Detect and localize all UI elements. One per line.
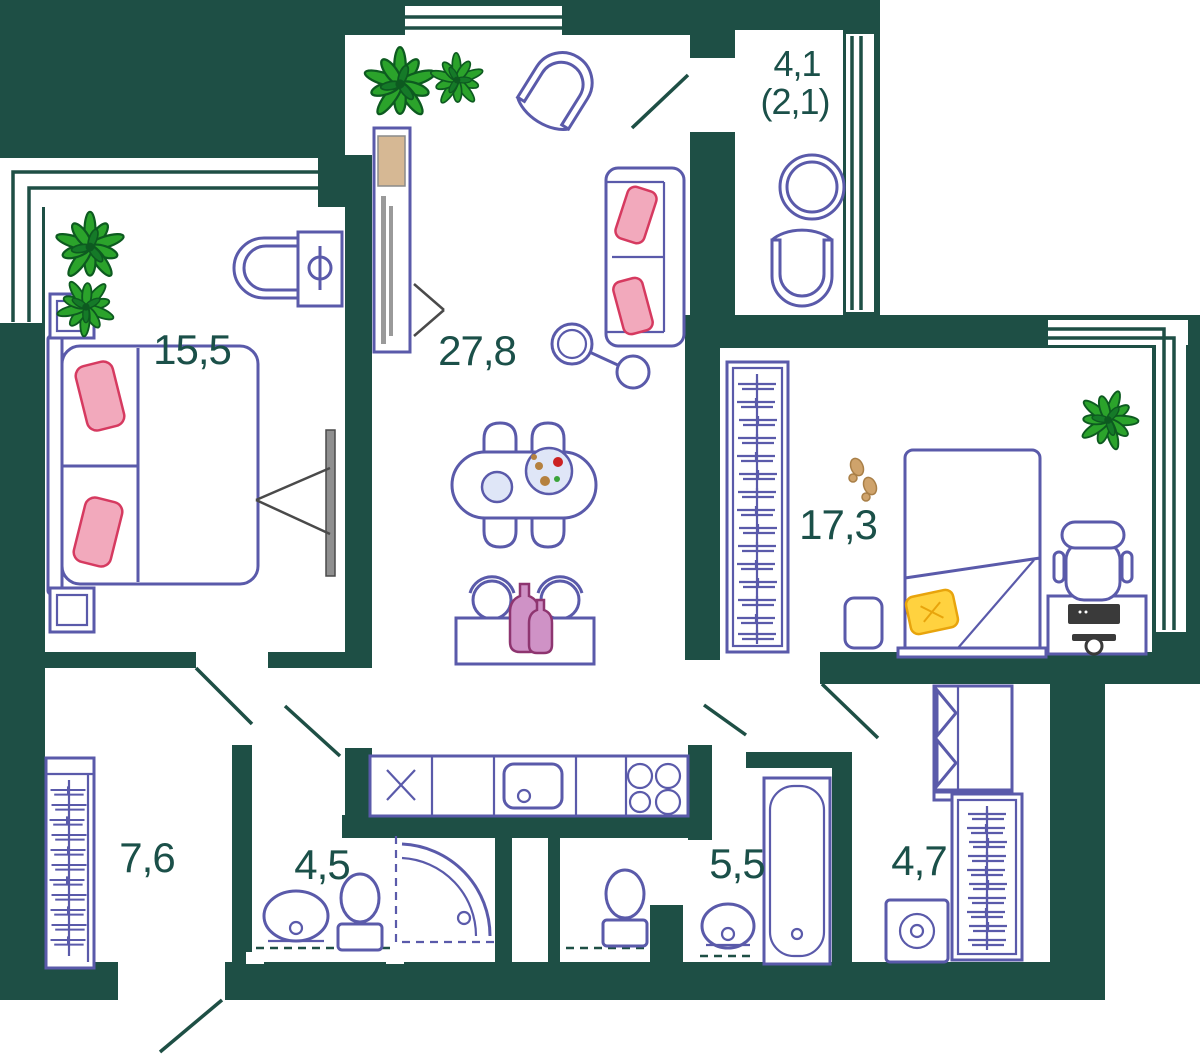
room-label-balcony: 4,1 (773, 43, 820, 85)
balcony-furniture (772, 155, 844, 306)
room-label-living-kitchen: 27,8 (438, 327, 516, 375)
slippers-icon (848, 456, 879, 501)
room-label-shower-room: 4,5 (294, 841, 349, 889)
balcony-door-opening (690, 58, 735, 132)
sofa-icon (606, 168, 684, 346)
coat-rack-icon (952, 794, 1022, 960)
plant-icon (1070, 381, 1147, 456)
console-table-icon (456, 577, 594, 664)
double-bed-icon (48, 336, 258, 594)
armchair-icon (512, 41, 603, 137)
hallway-furniture (46, 758, 94, 968)
kitchen-counter-icon (370, 756, 688, 816)
bedroom-main-furniture (46, 212, 342, 632)
bathroom-sink-icon (702, 904, 754, 948)
tv-icon (256, 430, 335, 576)
folding-wardrobe-icon (934, 686, 1012, 800)
floor-plan-drawing (0, 0, 1200, 1054)
plant-icon (55, 212, 125, 279)
pouf-icon (845, 598, 882, 648)
plant-icon (363, 47, 437, 117)
door-balcony (632, 75, 688, 128)
corner-shower-icon (396, 836, 494, 942)
single-bed-icon (898, 450, 1046, 657)
bedroom-second-furniture (727, 362, 1147, 657)
mouse-icon (1086, 638, 1102, 654)
bathtub-icon (764, 778, 830, 964)
room-label-bedroom-second: 17,3 (799, 501, 877, 549)
floor-plan: 15,5 27,8 4,1 (2,1) 17,3 7,6 4,5 5,5 4,7 (0, 0, 1200, 1054)
room-label-bedroom-main: 15,5 (153, 326, 231, 374)
chair-icon (772, 230, 832, 306)
window-living (405, 6, 562, 38)
window-balcony (846, 34, 874, 312)
toilet-icon (603, 870, 647, 946)
office-chair-icon (1054, 522, 1132, 600)
dressing-table-icon (298, 232, 342, 306)
room-label-hallway: 7,6 (119, 834, 174, 882)
door-entry (160, 1000, 222, 1052)
nightstand-icon (50, 588, 94, 632)
coat-rack-icon (46, 758, 94, 968)
living-kitchen-furniture (363, 41, 688, 816)
dining-table-icon (452, 423, 596, 547)
door-bedroom-second (822, 684, 878, 738)
room-label-balcony-reduced: (2,1) (760, 81, 829, 123)
door-bedroom-main (196, 668, 252, 724)
laundry-hall-furniture (886, 686, 1022, 962)
desk-icon (1048, 596, 1146, 654)
room-label-bathroom: 5,5 (709, 840, 764, 888)
door-living (285, 706, 340, 756)
room-label-laundry-hall: 4,7 (891, 837, 946, 885)
monitor-icon (1068, 604, 1120, 624)
plant-icon (425, 45, 492, 114)
round-table-icon (780, 155, 844, 219)
plate-icon (482, 472, 512, 502)
door-bathroom (704, 705, 746, 735)
washing-machine-icon (886, 900, 948, 962)
wardrobe-icon (727, 362, 788, 652)
bathroom-sink-icon (264, 891, 328, 941)
shelving-cabinet-icon (374, 128, 444, 352)
